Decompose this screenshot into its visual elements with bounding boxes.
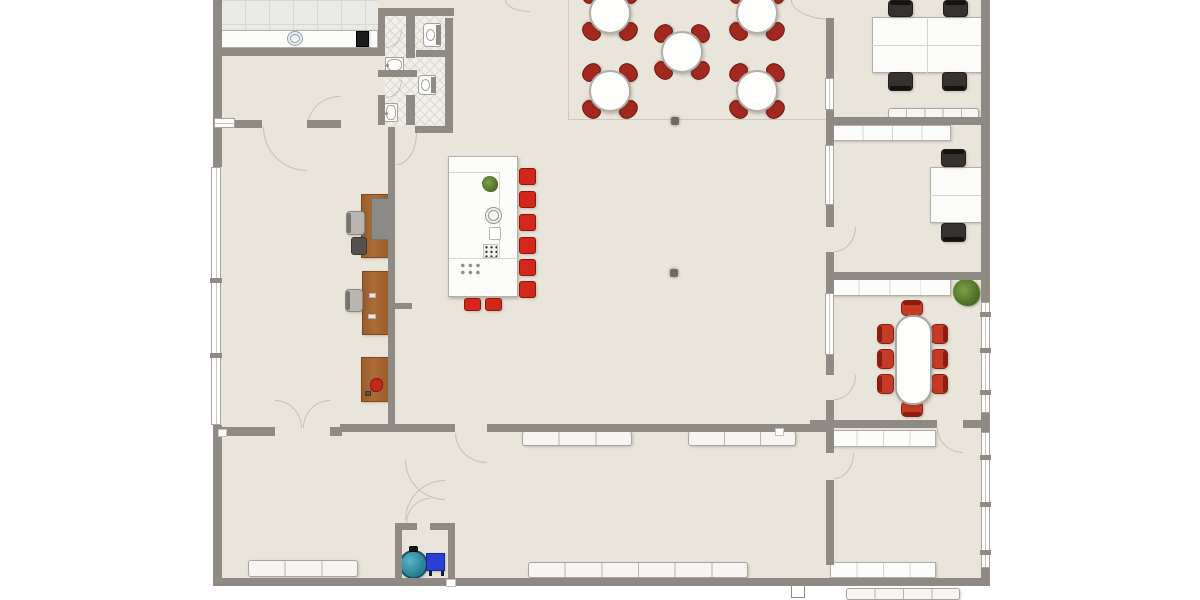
radiator[interactable] <box>846 588 960 600</box>
toilet-tank <box>436 25 441 45</box>
desk-item <box>369 293 376 298</box>
wall <box>406 95 415 125</box>
cluster-divider <box>872 45 982 46</box>
column <box>670 269 678 277</box>
wall <box>340 424 455 432</box>
chair-back <box>890 1 911 5</box>
chair-back <box>346 291 350 310</box>
chair-back <box>943 237 964 241</box>
window-glass-line <box>216 168 217 424</box>
cabinet[interactable] <box>828 279 951 296</box>
junction-marker <box>446 579 456 587</box>
wall <box>213 425 222 586</box>
window-glass-line <box>985 303 986 412</box>
bar-stool[interactable] <box>464 298 481 311</box>
cabinet[interactable] <box>830 430 936 447</box>
chair-back <box>943 376 947 392</box>
bar-stool[interactable] <box>519 259 536 276</box>
wall <box>406 16 415 58</box>
box-leg <box>441 571 444 576</box>
window-tick <box>210 353 222 358</box>
radiator[interactable] <box>522 431 632 446</box>
wall <box>826 480 834 565</box>
area-line <box>568 0 569 119</box>
dining-table[interactable] <box>661 31 703 73</box>
bar-stool[interactable] <box>519 168 536 185</box>
washbasin-tap <box>386 64 389 67</box>
window-glass-line <box>829 294 830 354</box>
wall <box>415 126 452 133</box>
wall <box>826 117 990 125</box>
wall <box>378 16 385 56</box>
tank-cap <box>409 546 418 552</box>
window-glass-line <box>829 146 830 204</box>
desk-item-dark <box>365 391 371 396</box>
dining-table[interactable] <box>736 70 778 112</box>
chair-back <box>903 301 921 305</box>
toilet-bowl <box>426 29 435 41</box>
wall <box>378 8 454 16</box>
wall <box>448 523 455 580</box>
junction-marker <box>218 429 227 437</box>
window-tick <box>980 312 991 317</box>
chair-back <box>878 351 882 367</box>
desk-return[interactable] <box>371 198 389 240</box>
radiator[interactable] <box>248 560 358 577</box>
appliance[interactable] <box>356 31 369 47</box>
chair-back <box>943 326 947 342</box>
desk-item <box>368 314 376 319</box>
window-tick <box>980 455 991 460</box>
wall <box>981 0 990 302</box>
chair-back <box>943 150 964 154</box>
island-stove[interactable] <box>483 244 498 258</box>
office-desk[interactable] <box>362 271 389 335</box>
wall <box>963 420 990 428</box>
wall <box>416 50 453 57</box>
wall <box>378 95 385 125</box>
radiator[interactable] <box>528 562 748 578</box>
wall <box>826 18 834 78</box>
wall <box>826 110 834 145</box>
chair-back <box>945 1 966 5</box>
dining-table[interactable] <box>589 70 631 112</box>
wall <box>213 0 222 167</box>
wall <box>826 280 834 293</box>
washbasin-tap <box>385 112 388 115</box>
desk-item-red <box>370 378 383 392</box>
cluster-divider <box>930 195 982 196</box>
area-line <box>568 119 827 120</box>
bar-stool[interactable] <box>485 298 502 311</box>
wall <box>213 48 385 56</box>
window-glass-line <box>985 433 986 567</box>
cabinet[interactable] <box>833 125 951 141</box>
window-tick <box>210 278 222 283</box>
cabinet[interactable] <box>830 562 936 578</box>
wall <box>307 120 341 128</box>
junction-marker <box>775 428 784 436</box>
chair-back <box>878 326 882 342</box>
island-burners[interactable] <box>459 262 482 276</box>
window-tick <box>980 390 991 395</box>
bar-stool[interactable] <box>519 191 536 208</box>
island-plant[interactable] <box>482 176 498 192</box>
box-leg <box>429 571 432 576</box>
wall <box>395 523 402 580</box>
plant[interactable] <box>953 279 980 306</box>
chair-back <box>903 412 921 416</box>
wall <box>826 252 834 272</box>
wall <box>981 568 990 586</box>
wall <box>395 523 417 530</box>
toilet-tank <box>431 77 436 93</box>
island-sink-basin <box>488 210 499 221</box>
column <box>671 117 679 125</box>
island-counter-edge <box>449 258 518 259</box>
wall <box>826 205 834 227</box>
bar-stool[interactable] <box>519 281 536 298</box>
floor-plan-canvas <box>0 0 1200 600</box>
bar-stool[interactable] <box>519 214 536 231</box>
chair-back <box>944 86 965 90</box>
wall <box>234 120 262 128</box>
water-tank[interactable] <box>399 550 428 579</box>
bar-stool[interactable] <box>519 237 536 254</box>
chair-back <box>347 213 351 233</box>
window-glass-line <box>215 123 234 124</box>
toilet-bowl <box>421 79 430 91</box>
wall <box>213 578 990 586</box>
window-tick <box>980 502 991 507</box>
wall <box>378 70 417 77</box>
island-tray[interactable] <box>489 227 501 240</box>
chair-back <box>878 376 882 392</box>
wall <box>826 355 834 375</box>
counter-sink-basin <box>290 34 300 43</box>
window-tick <box>980 550 991 555</box>
wall <box>445 18 453 133</box>
window-glass-line <box>829 79 830 109</box>
wall <box>388 127 395 428</box>
island-counter-edge <box>449 172 499 173</box>
chair-back <box>890 86 911 90</box>
conference-table[interactable] <box>895 315 932 405</box>
wall <box>810 420 937 428</box>
exit-door[interactable] <box>791 585 805 598</box>
electric-box[interactable] <box>426 553 445 571</box>
office-chair-small[interactable] <box>351 237 367 255</box>
wall <box>395 303 412 309</box>
window-tick <box>980 348 991 353</box>
wall <box>826 428 834 453</box>
chair-back <box>943 351 947 367</box>
wall <box>826 272 990 280</box>
